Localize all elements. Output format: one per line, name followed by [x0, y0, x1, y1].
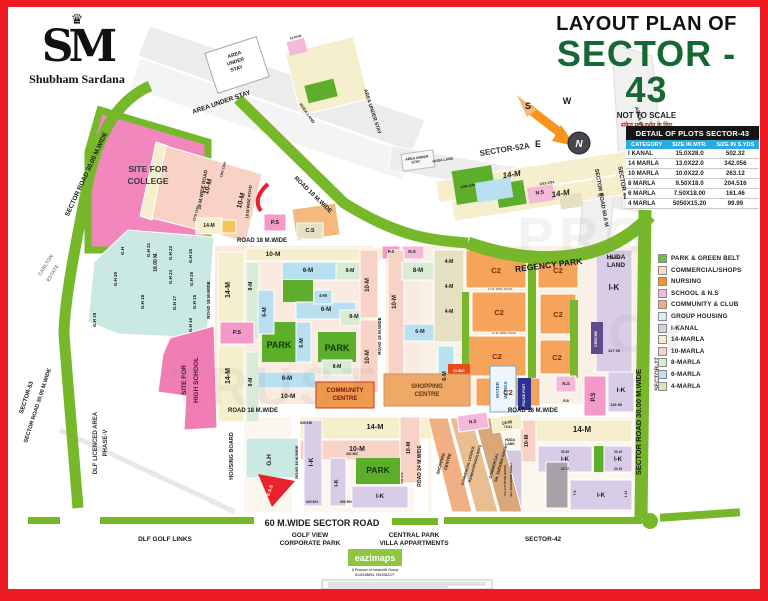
plot-table-row: 4 MARLA 5050X15.20 99.99 — [626, 199, 759, 209]
plot-table-header-cell: SIZE IN MTR. — [667, 140, 711, 149]
map-label: 125 85 — [610, 403, 622, 407]
road-label: ROAD 18 M.WIDE — [377, 317, 382, 355]
map-label: 6-M — [303, 268, 313, 274]
map-label: G.H 19 — [92, 312, 97, 327]
shopping-centre-block — [384, 374, 470, 406]
plot-size-yds-cell: 161.46 — [712, 189, 759, 199]
map-legend: PARK & GREEN BELT COMMERCIAL/SHOPS NURSI… — [658, 254, 741, 393]
map-label: P.S — [388, 249, 395, 254]
map-label: C2 — [491, 266, 501, 275]
map-label: 6-M — [321, 307, 331, 313]
roundabout — [642, 513, 658, 529]
legend-swatch-icon — [658, 312, 667, 321]
plot-table-row: 14 MARLA 13.0X22.0 342.056 — [626, 159, 759, 169]
legend-item: I-KANAL — [658, 324, 741, 333]
map-label: I-K — [597, 493, 606, 499]
community-centre-label: COMMUNITY — [327, 388, 364, 394]
map-label: N.S — [562, 381, 570, 386]
map-label: 10-M — [365, 278, 371, 292]
road-label: ROAD 18 M.WIDE — [508, 408, 558, 414]
map-label: G.H 17 — [172, 295, 177, 310]
map-label: P.S — [233, 330, 241, 336]
legend-item: 4-MARLA — [658, 382, 741, 391]
road-label: ROAD 18 M.WIDE — [206, 281, 211, 319]
legend-label: I-KANAL — [671, 325, 698, 332]
legend-item: GROUP HOUSING — [658, 312, 741, 321]
map-label: C2 — [494, 308, 504, 317]
map-label: PHASE-V — [103, 430, 109, 457]
legend-swatch-icon — [658, 277, 667, 286]
map-label: 602 603 — [346, 452, 358, 456]
compass-e: E — [535, 139, 541, 149]
map-label: G.H 24 — [168, 269, 173, 284]
road-label: ROAD 18 M.WIDE — [237, 238, 287, 244]
map-label: G.H 16 — [188, 317, 193, 332]
map-label: I-K — [308, 457, 315, 466]
legend-swatch-icon — [658, 254, 667, 263]
map-label: 10-M — [524, 434, 530, 447]
road-label: 12 M. WIDE ROAD — [488, 287, 512, 291]
plot-size-yds-cell: 263.12 — [712, 169, 759, 179]
map-label: 609 594 — [340, 500, 352, 504]
legend-item: SCHOOL & N.S — [658, 289, 741, 298]
map-shape — [528, 254, 536, 378]
legend-item: PARK & GREEN BELT — [658, 254, 741, 263]
map-label: 14-M — [225, 368, 232, 384]
map-label: 639 618 — [300, 421, 312, 425]
map-label: WORKS — [503, 381, 508, 398]
map-label: CRECHE — [594, 331, 598, 348]
plot-table-body: I KANAL 15.0X28.0 502.32 14 MARLA 13.0X2… — [626, 149, 759, 209]
map-label: 18.00 M. — [153, 252, 159, 272]
map-label: CLINIC — [453, 369, 465, 373]
map-label: G.H — [120, 247, 125, 255]
site-for-college-label: SITE FOR — [128, 164, 167, 174]
map-label: 74 61 — [504, 425, 512, 429]
map-label: 8-M — [248, 378, 254, 387]
map-shape — [328, 585, 486, 586]
brand-logo: ♛ SM Shubham Sardana — [22, 12, 132, 87]
map-shape — [660, 508, 740, 522]
map-label: C2 — [553, 310, 563, 319]
plot-size-yds-cell: 342.056 — [712, 159, 759, 169]
map-label: G.H 23 — [168, 245, 173, 260]
legend-swatch-icon — [658, 266, 667, 275]
map-label: I-K — [617, 387, 626, 394]
road-label: ROAD 24 M.WIDE — [417, 445, 423, 487]
map-shape — [328, 587, 448, 588]
map-label: 8-M — [413, 268, 423, 274]
legend-item: 6-MARLA — [658, 370, 741, 379]
map-label: 542 373 — [400, 472, 404, 483]
map-label: 4-M — [445, 259, 454, 265]
plot-detail-table: DETAIL OF PLOTS SECTOR-43 CATEGORYSIZE I… — [626, 126, 759, 209]
map-label: C2 — [553, 266, 563, 275]
map-label: 14-M — [203, 223, 214, 229]
logo-name: Shubham Sardana — [22, 72, 132, 87]
plot-table-row: 10 MARLA 10.0X22.0 263.12 — [626, 169, 759, 179]
site-for-college-label: COLLEGE — [127, 176, 168, 186]
map-label: I-K — [334, 479, 340, 486]
sector-road-label: 60 M.WIDE SECTOR ROAD — [265, 518, 380, 528]
map-label: N.S — [469, 419, 477, 425]
map-label: 8130198894, 9910082177 — [355, 573, 395, 577]
map-label: 14-M — [225, 282, 232, 298]
map-label: 4-M — [445, 284, 454, 290]
map-label: 7 8 — [573, 491, 577, 496]
legend-label: 8-MARLA — [671, 359, 701, 366]
map-label: C.S — [305, 228, 315, 234]
map-label: G.H 26 — [188, 248, 193, 263]
legend-item: 8-MARLA — [658, 358, 741, 367]
legend-swatch-icon — [658, 382, 667, 391]
road-label: 12 M. WIDE ROAD — [492, 331, 516, 335]
map-label: 20 17 — [561, 467, 569, 471]
legend-item: NURSING — [658, 277, 741, 286]
legend-swatch-icon — [658, 289, 667, 298]
legend-label: PARK & GREEN BELT — [671, 255, 740, 262]
landmark-label: CORPORATE PARK — [280, 540, 341, 547]
plot-size-mtr-cell: 15.0X28.0 — [667, 149, 711, 159]
map-label: I-K — [609, 283, 620, 292]
legend-swatch-icon — [658, 335, 667, 344]
legend-item: COMMUNITY & CLUB — [658, 300, 741, 309]
map-label: N.S — [408, 249, 416, 254]
map-label: P.S — [271, 220, 279, 226]
map-label: C.L.U 5 STAR HOTEL — [503, 464, 507, 495]
legend-item: 14-MARLA — [658, 335, 741, 344]
legend-item: COMMERCIAL/SHOPS — [658, 266, 741, 275]
legend-label: NURSING — [671, 278, 701, 285]
plot-size-yds-cell: 204.516 — [712, 179, 759, 189]
legend-label: COMMERCIAL/SHOPS — [671, 267, 741, 274]
map-label: G.H 18 — [140, 294, 145, 309]
map-label: 1 14 — [624, 491, 628, 498]
map-shape — [28, 517, 60, 524]
map-label: 8-M — [349, 314, 359, 320]
frame-border-left — [0, 0, 8, 601]
map-label: 8-M — [333, 364, 342, 370]
map-label: C2 — [552, 353, 562, 362]
plot-table-header-cell: CATEGORY — [626, 140, 667, 149]
road-label: ROAD 18 M.WIDE — [228, 408, 278, 414]
map-shape — [392, 518, 438, 525]
map-label: 6-M — [299, 338, 305, 348]
landmark-label: DLF GOLF LINKS — [138, 536, 192, 543]
map-label: SH. PARAMBIR SINGH — [509, 463, 513, 497]
landmark-label: CENTRAL PARK — [389, 532, 440, 539]
map-label: POLICE POST — [522, 383, 526, 407]
map-shape — [570, 300, 578, 378]
site-for-high-school-label: HIGH SCHOOL — [193, 357, 200, 403]
scale-note: NOT TO SCALE — [539, 111, 754, 120]
legend-label: 4-MARLA — [671, 383, 701, 390]
map-shape — [283, 280, 313, 302]
legend-swatch-icon — [658, 347, 667, 356]
housing-board-label: HOUSING BOARD — [229, 432, 235, 479]
park-label: PARK — [267, 340, 292, 350]
map-shape — [258, 184, 268, 211]
plot-size-mtr-cell: 9.50X18.0 — [667, 179, 711, 189]
map-label: LAND — [505, 442, 515, 446]
map-label: DLF LICENCED AREA — [93, 411, 99, 474]
compass-s: S — [525, 101, 531, 111]
plot-size-mtr-cell: 13.0X22.0 — [667, 159, 711, 169]
map-label: 4-M — [445, 309, 454, 315]
map-shape — [222, 220, 236, 233]
map-shape — [328, 583, 486, 584]
sector-label: SECTOR-42 — [525, 536, 562, 543]
plot-table-title: DETAIL OF PLOTS SECTOR-43 — [626, 126, 759, 140]
plot-category-cell: 4 MARLA — [626, 199, 667, 209]
map-label: I-K — [561, 457, 570, 463]
map-label: 625 624 — [306, 500, 318, 504]
map-label: G.H 21 — [146, 242, 151, 257]
plot-size-mtr-cell: 10.0X22.0 — [667, 169, 711, 179]
map-label: 10-M — [266, 251, 281, 258]
map-label: 14-M — [366, 422, 383, 431]
map-label: 20 19 — [614, 450, 622, 454]
map-label: 6-M — [442, 371, 448, 381]
plot-table-header-row: CATEGORYSIZE IN MTR.SIZE IN S.YDS — [626, 140, 759, 149]
compass-n: N — [575, 139, 583, 150]
map-label: 24 15 — [614, 467, 622, 471]
map-label: 4-M — [319, 293, 327, 298]
map-label: LAND — [607, 262, 625, 269]
map-label: R.B — [563, 399, 569, 403]
plot-table-header-cell: SIZE IN S.YDS — [712, 140, 759, 149]
shopping-centre-label: SHOPPING — [411, 384, 443, 390]
plot-category-cell: I KANAL — [626, 149, 667, 159]
legend-swatch-icon — [658, 370, 667, 379]
map-label: WATER — [495, 381, 500, 398]
watermark: PRO — [517, 207, 652, 267]
plot-size-yds-cell: 502.32 — [712, 149, 759, 159]
legend-label: 10-MARLA — [671, 348, 704, 355]
title-line2: SECTOR - 43 — [539, 36, 754, 108]
frame-border-bottom — [0, 589, 768, 601]
map-label: G.H 15 — [192, 294, 197, 309]
map-label: C2 — [492, 352, 502, 361]
landmark-label: VILLA APPARTMENTS — [379, 540, 449, 547]
legend-swatch-icon — [658, 324, 667, 333]
map-label: G.H 20 — [113, 271, 118, 286]
map-label: 10-M — [365, 350, 371, 364]
landmark-label: GOLF VIEW — [292, 532, 329, 539]
plot-category-cell: 14 MARLA — [626, 159, 667, 169]
map-shape — [594, 446, 604, 472]
page-title: LAYOUT PLAN OF SECTOR - 43 NOT TO SCALE … — [539, 13, 754, 129]
road-label: ROAD 18 M.WIDE — [294, 445, 299, 479]
map-label: 14-M — [573, 425, 592, 434]
map-label: 10-M — [406, 441, 412, 454]
map-shape — [444, 517, 642, 524]
logo-monogram: SM — [22, 26, 132, 68]
map-label: 30 35 — [561, 450, 569, 454]
map-label: 10-M — [281, 393, 296, 400]
road-label: SECTOR ROAD 30.00 M.WIDE — [634, 369, 643, 475]
map-label: I-K — [614, 457, 623, 463]
map-label: I-K — [376, 494, 385, 500]
map-label: 8-M — [346, 268, 355, 274]
legend-label: GROUP HOUSING — [671, 313, 728, 320]
legend-swatch-icon — [658, 358, 667, 367]
frame-border-right — [760, 0, 768, 601]
plot-table-row: 6 MARLA 7.50X18.00 161.46 — [626, 189, 759, 199]
map-label: 10-M — [392, 295, 398, 309]
plot-size-mtr-cell: 5050X15.20 — [667, 199, 711, 209]
plot-size-mtr-cell: 7.50X18.00 — [667, 189, 711, 199]
map-label: TM — [403, 550, 408, 554]
site-for-high-school-label: SITE FOR — [181, 365, 188, 395]
shopping-centre-label: CENTRE — [415, 392, 440, 398]
legend-swatch-icon — [658, 300, 667, 309]
plot-table-row: I KANAL 15.0X28.0 502.32 — [626, 149, 759, 159]
community-centre-label: CENTRE — [333, 396, 358, 402]
map-label: P.S — [591, 393, 597, 402]
eazimaps-brand: eazimaps — [355, 553, 396, 563]
plot-size-yds-cell: 99.99 — [712, 199, 759, 209]
map-label: G.H 25 — [189, 271, 194, 286]
legend-label: COMMUNITY & CLUB — [671, 301, 738, 308]
map-shape — [100, 517, 254, 524]
park-label: PARK — [325, 343, 350, 353]
park-label: PARK — [366, 465, 390, 475]
plot-table-row: 8 MARLA 9.50X18.0 204.516 — [626, 179, 759, 189]
legend-item: 10-MARLA — [658, 347, 741, 356]
map-label: 6-M — [415, 329, 425, 335]
layout-plan-page: PROTRUSTCYSECTOR ROAD 30.00 M.WIDESECTOR… — [0, 0, 768, 601]
plot-category-cell: 6 MARLA — [626, 189, 667, 199]
legend-label: 6-MARLA — [671, 371, 701, 378]
map-label: 8-M — [248, 282, 254, 291]
map-label: 103 102 — [608, 256, 620, 260]
map-shape — [60, 430, 235, 512]
frame-border-top — [0, 0, 768, 7]
map-label: A Product of Instadrift Group — [352, 568, 399, 572]
map-label: 6-M — [282, 376, 292, 382]
legend-label: SCHOOL & N.S — [671, 290, 719, 297]
plot-category-cell: 10 MARLA — [626, 169, 667, 179]
legend-label: 14-MARLA — [671, 336, 704, 343]
map-label: G.H — [266, 454, 273, 466]
plot-category-cell: 8 MARLA — [626, 179, 667, 189]
map-label: 6-M — [262, 307, 268, 317]
sector-label: SECTOR-52A — [479, 141, 531, 158]
map-label: 117 93 — [608, 348, 621, 353]
